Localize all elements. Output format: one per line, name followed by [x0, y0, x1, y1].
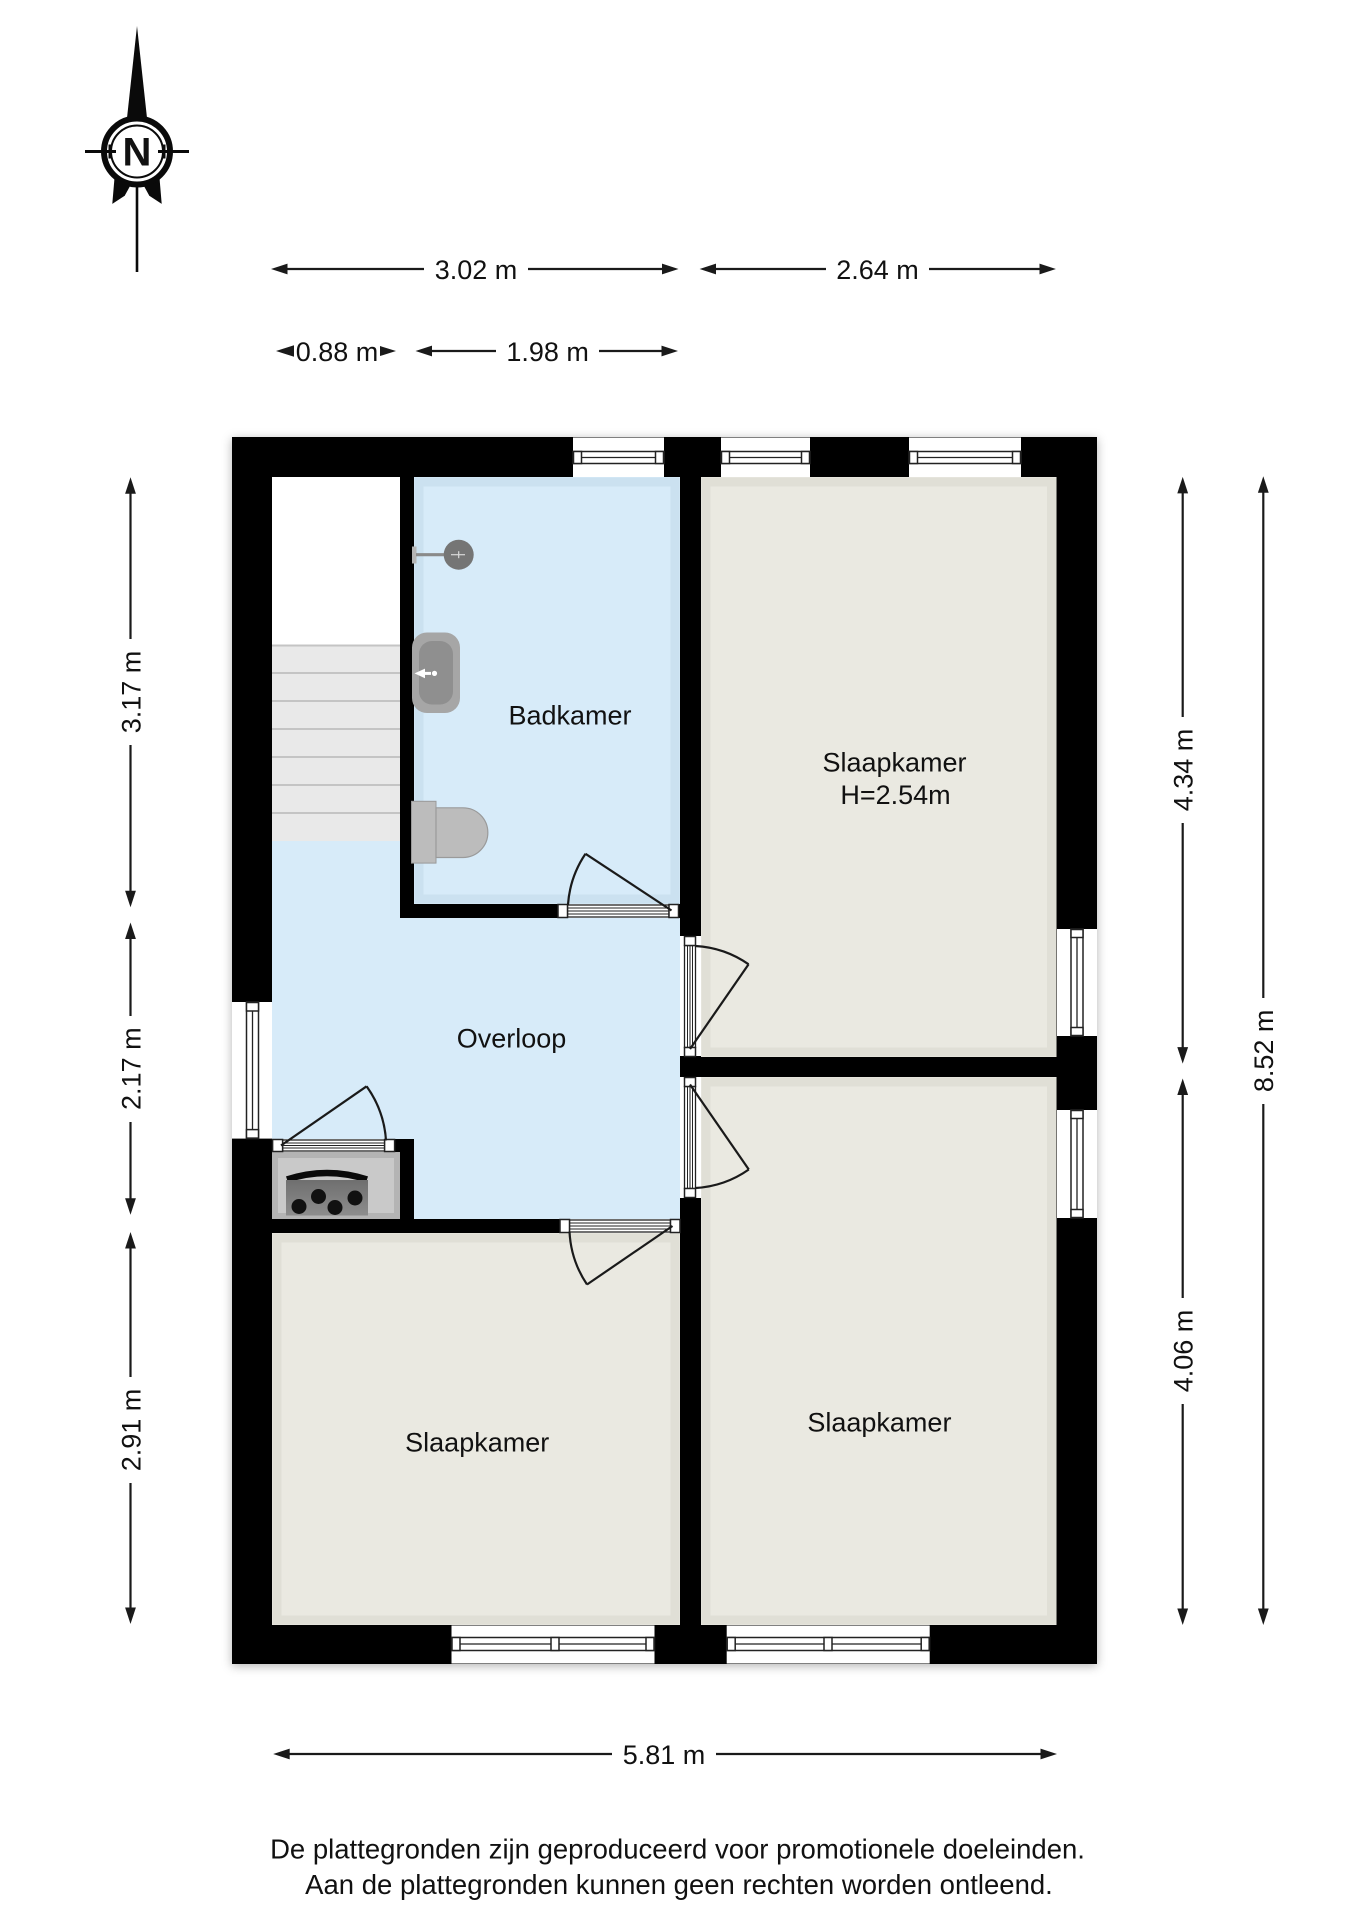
svg-text:Slaapkamer: Slaapkamer [807, 1407, 951, 1437]
svg-text:H=2.54m: H=2.54m [840, 780, 950, 810]
svg-text:Aan de plattegronden kunnen ge: Aan de plattegronden kunnen geen rechten… [305, 1869, 1053, 1900]
svg-text:N: N [123, 131, 152, 175]
svg-text:Badkamer: Badkamer [508, 701, 631, 731]
svg-text:Slaapkamer: Slaapkamer [405, 1427, 549, 1457]
svg-text:8.52 m: 8.52 m [1249, 1010, 1279, 1093]
svg-text:2.64 m: 2.64 m [836, 255, 919, 285]
svg-text:De plattegronden zijn geproduc: De plattegronden zijn geproduceerd voor … [270, 1833, 1085, 1864]
svg-text:2.17 m: 2.17 m [116, 1027, 146, 1110]
svg-text:2.91 m: 2.91 m [116, 1389, 146, 1472]
svg-text:Overloop: Overloop [457, 1024, 567, 1054]
svg-text:5.81 m: 5.81 m [623, 1740, 706, 1770]
svg-text:3.02 m: 3.02 m [435, 255, 518, 285]
svg-text:1.98 m: 1.98 m [506, 337, 589, 367]
svg-text:4.34 m: 4.34 m [1169, 729, 1199, 812]
svg-text:0.88 m: 0.88 m [296, 337, 379, 367]
svg-text:3.17 m: 3.17 m [116, 651, 146, 734]
svg-text:Slaapkamer: Slaapkamer [822, 748, 966, 778]
svg-text:4.06 m: 4.06 m [1169, 1310, 1199, 1393]
